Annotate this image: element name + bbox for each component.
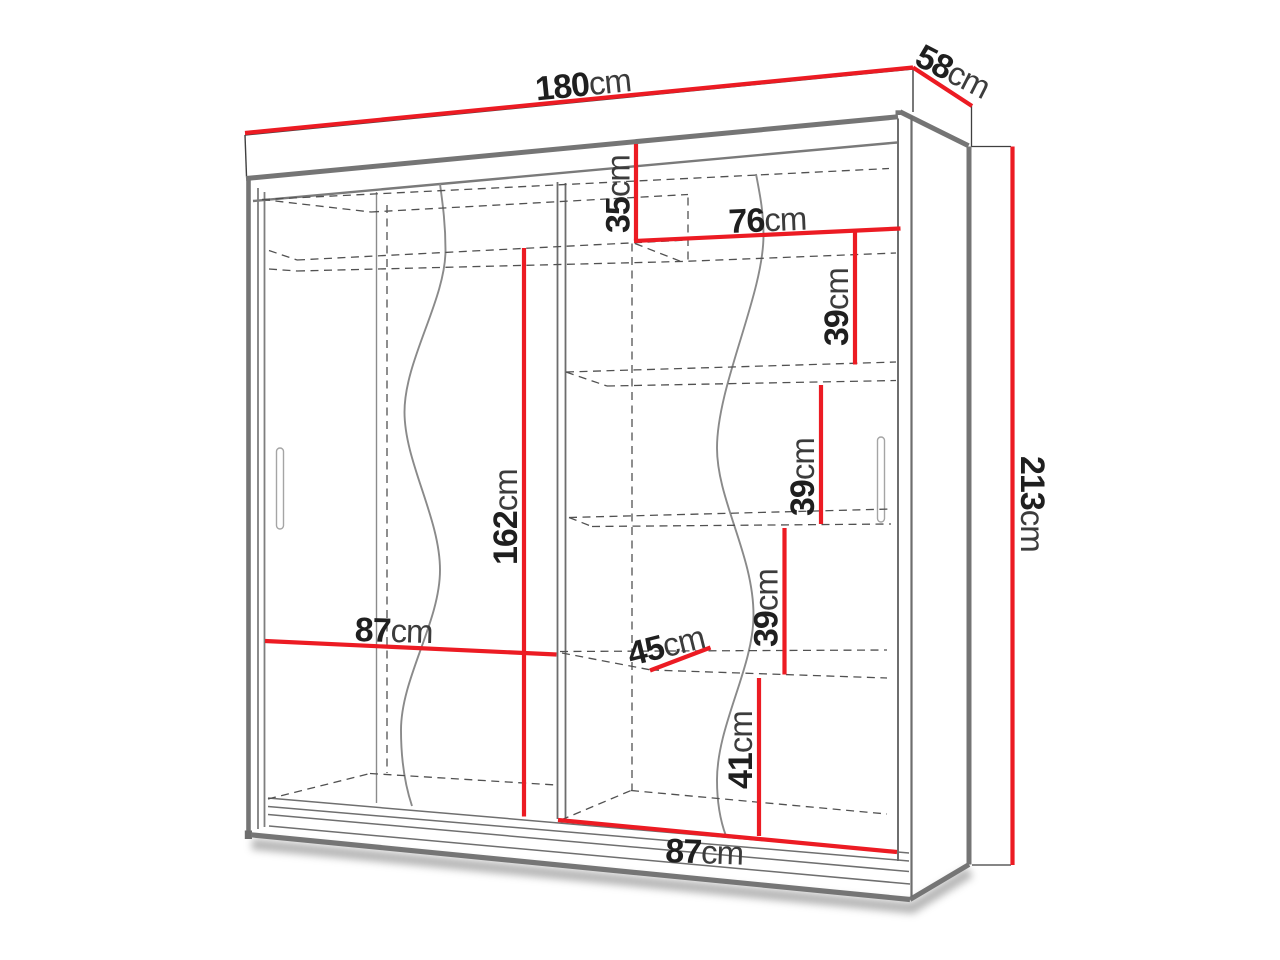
svg-text:213cm: 213cm — [1013, 456, 1051, 552]
svg-text:45cm: 45cm — [624, 618, 709, 674]
svg-text:58cm: 58cm — [909, 37, 996, 106]
svg-text:76cm: 76cm — [728, 200, 807, 241]
svg-text:39cm: 39cm — [784, 438, 822, 516]
svg-text:87cm: 87cm — [354, 611, 433, 651]
svg-text:162cm: 162cm — [487, 469, 525, 565]
svg-text:39cm: 39cm — [818, 268, 856, 346]
svg-text:41cm: 41cm — [722, 711, 760, 789]
svg-text:87cm: 87cm — [665, 832, 744, 873]
svg-text:39cm: 39cm — [748, 569, 786, 647]
svg-text:180cm: 180cm — [534, 61, 633, 108]
svg-text:35cm: 35cm — [600, 155, 638, 233]
